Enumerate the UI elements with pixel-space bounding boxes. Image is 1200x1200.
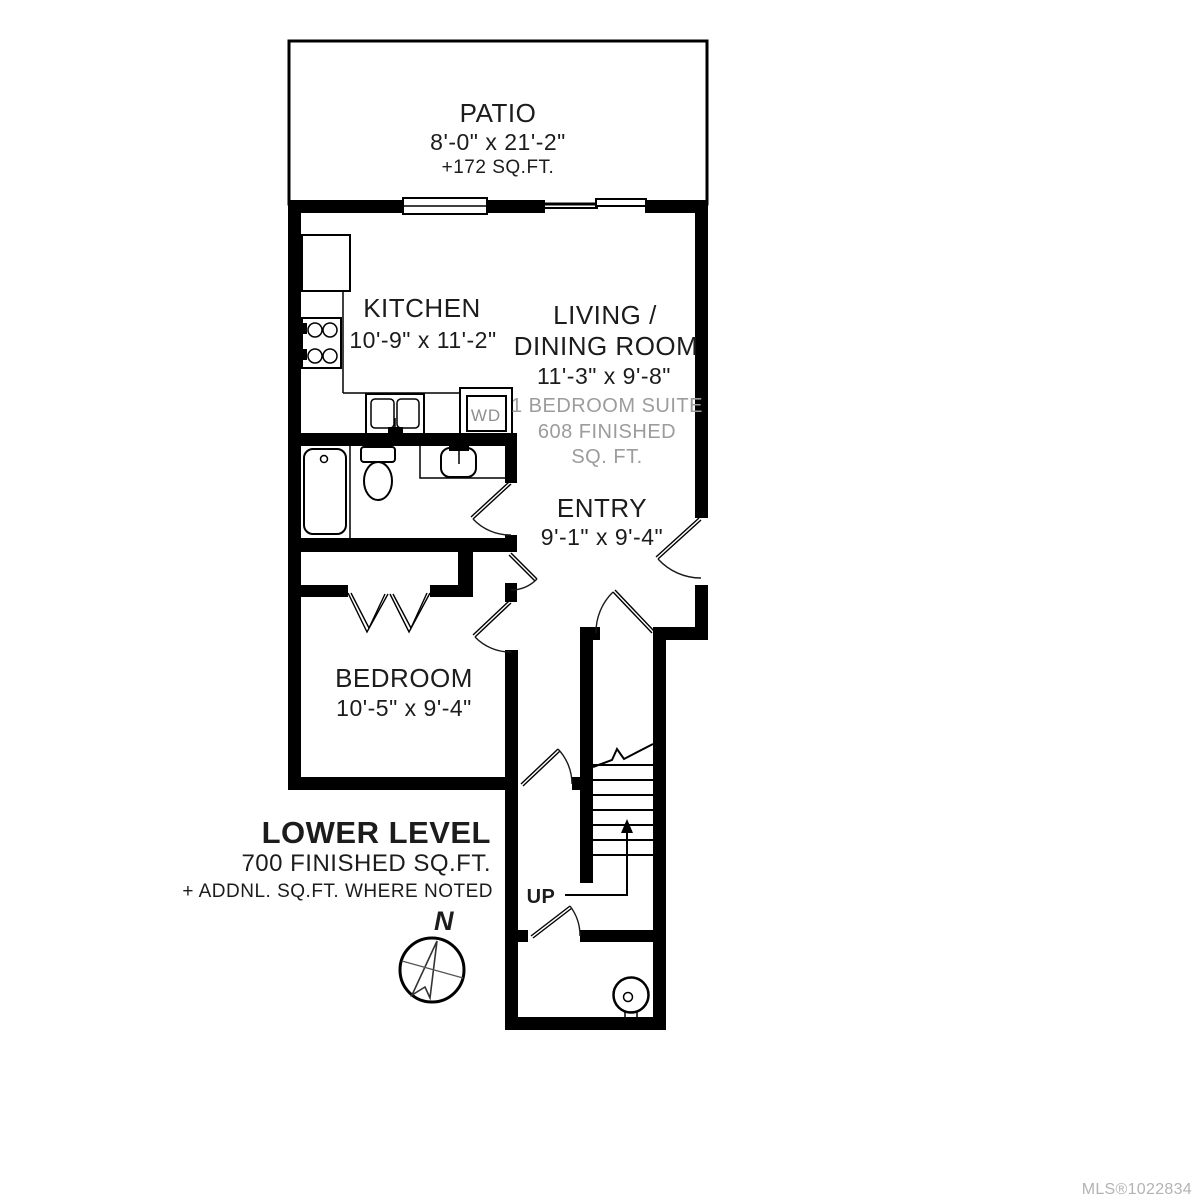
patio-name: PATIO xyxy=(460,98,537,128)
wall-top-mid xyxy=(486,200,545,213)
floor-plan-page: WD N PATIO 8'-0" x 21'-2" +172 SQ.FT. KI… xyxy=(0,0,1200,1200)
wall-stair-right xyxy=(653,627,666,1030)
kitchen-faucet xyxy=(388,427,403,434)
patio-area: +172 SQ.FT. xyxy=(442,157,555,178)
kitchen-dims: 10'-9" x 11'-2" xyxy=(349,327,496,353)
wall-utility-top-left xyxy=(518,930,528,942)
compass: N xyxy=(400,906,464,1002)
stair-up-arrow xyxy=(565,819,633,895)
wall-bedroom-top-right xyxy=(430,585,473,597)
wall-entry-bottom xyxy=(580,627,600,640)
kitchen-sink xyxy=(366,394,424,434)
compass-circle xyxy=(400,938,464,1002)
washer-dryer-unit: WD xyxy=(460,388,512,437)
living-dims: 11'-3" x 9'-8" xyxy=(537,363,671,389)
entry-name: ENTRY xyxy=(557,493,647,523)
suite-note-line2: 608 FINISHED xyxy=(538,421,676,443)
stove-knob xyxy=(302,323,307,334)
door-utility xyxy=(531,906,580,938)
wall-utility-bottom xyxy=(510,1017,666,1030)
wall-right-upper xyxy=(695,213,708,518)
wall-stair-left xyxy=(580,627,593,883)
wall-entry-stub xyxy=(505,583,517,602)
bathroom-sink xyxy=(420,443,505,478)
bathtub xyxy=(304,446,350,538)
bedroom-name: BEDROOM xyxy=(335,663,473,693)
fridge xyxy=(302,235,350,291)
plan-subtitle: 700 FINISHED SQ.FT. xyxy=(241,850,491,877)
bedroom-dims: 10'-5" x 9'-4" xyxy=(336,695,472,721)
wall-bedroom-bottom xyxy=(288,777,518,790)
room-label-kitchen: KITCHEN 10'-9" x 11'-2" xyxy=(349,293,496,353)
door-bedroom xyxy=(473,601,511,652)
room-label-living-dining: LIVING / DINING ROOM 11'-3" x 9'-8" 1 BE… xyxy=(511,300,703,468)
closet-bifold-doors xyxy=(348,593,430,632)
room-label-bedroom: BEDROOM 10'-5" x 9'-4" xyxy=(335,663,473,721)
wall-utility-top-right xyxy=(580,930,653,942)
wall-bedroom-top-left xyxy=(301,585,348,597)
wall-bath-corner xyxy=(505,535,517,552)
plan-title: LOWER LEVEL xyxy=(262,815,491,850)
sliding-door-panel xyxy=(596,199,646,206)
stairs xyxy=(593,744,653,855)
compass-north-label: N xyxy=(434,906,454,936)
bathroom-faucet xyxy=(449,443,469,451)
suite-note-line1: 1 BEDROOM SUITE xyxy=(511,395,703,417)
stove xyxy=(302,318,341,368)
mls-number: MLS®1022834 xyxy=(1082,1181,1192,1198)
living-name-line1: LIVING / xyxy=(553,300,657,330)
patio-dims: 8'-0" x 21'-2" xyxy=(430,129,566,155)
kitchen-name: KITCHEN xyxy=(363,293,481,323)
entry-dims: 9'-1" x 9'-4" xyxy=(541,524,663,550)
living-name-line2: DINING ROOM xyxy=(514,331,699,361)
stair-break-line xyxy=(593,744,653,767)
wall-hall-door-side xyxy=(572,777,593,790)
wall-bath-jamb xyxy=(505,446,517,483)
wall-top-right xyxy=(645,200,708,213)
room-label-patio: PATIO 8'-0" x 21'-2" +172 SQ.FT. xyxy=(430,98,566,178)
toilet xyxy=(361,447,395,500)
wall-left xyxy=(288,200,301,790)
floor-plan-drawing: WD N PATIO 8'-0" x 21'-2" +172 SQ.FT. KI… xyxy=(0,0,1200,1200)
wall-bath-bottom xyxy=(301,538,517,552)
title-block: LOWER LEVEL 700 FINISHED SQ.FT. + ADDNL.… xyxy=(182,815,493,902)
wall-lower-left xyxy=(505,650,518,1030)
room-label-entry: ENTRY 9'-1" x 9'-4" xyxy=(541,493,663,550)
wall-top-left xyxy=(288,200,403,213)
door-stairwell xyxy=(596,590,654,633)
window xyxy=(403,198,487,214)
plan-note: + ADDNL. SQ.FT. WHERE NOTED xyxy=(182,881,493,902)
door-bathroom xyxy=(471,482,511,535)
washer-dryer-label: WD xyxy=(471,406,501,425)
suite-note-line3: SQ. FT. xyxy=(571,446,642,468)
water-heater xyxy=(614,978,649,1019)
stairs-up-label: UP xyxy=(527,886,556,908)
door-lower-hall xyxy=(521,749,572,786)
stove-knob xyxy=(302,349,307,360)
